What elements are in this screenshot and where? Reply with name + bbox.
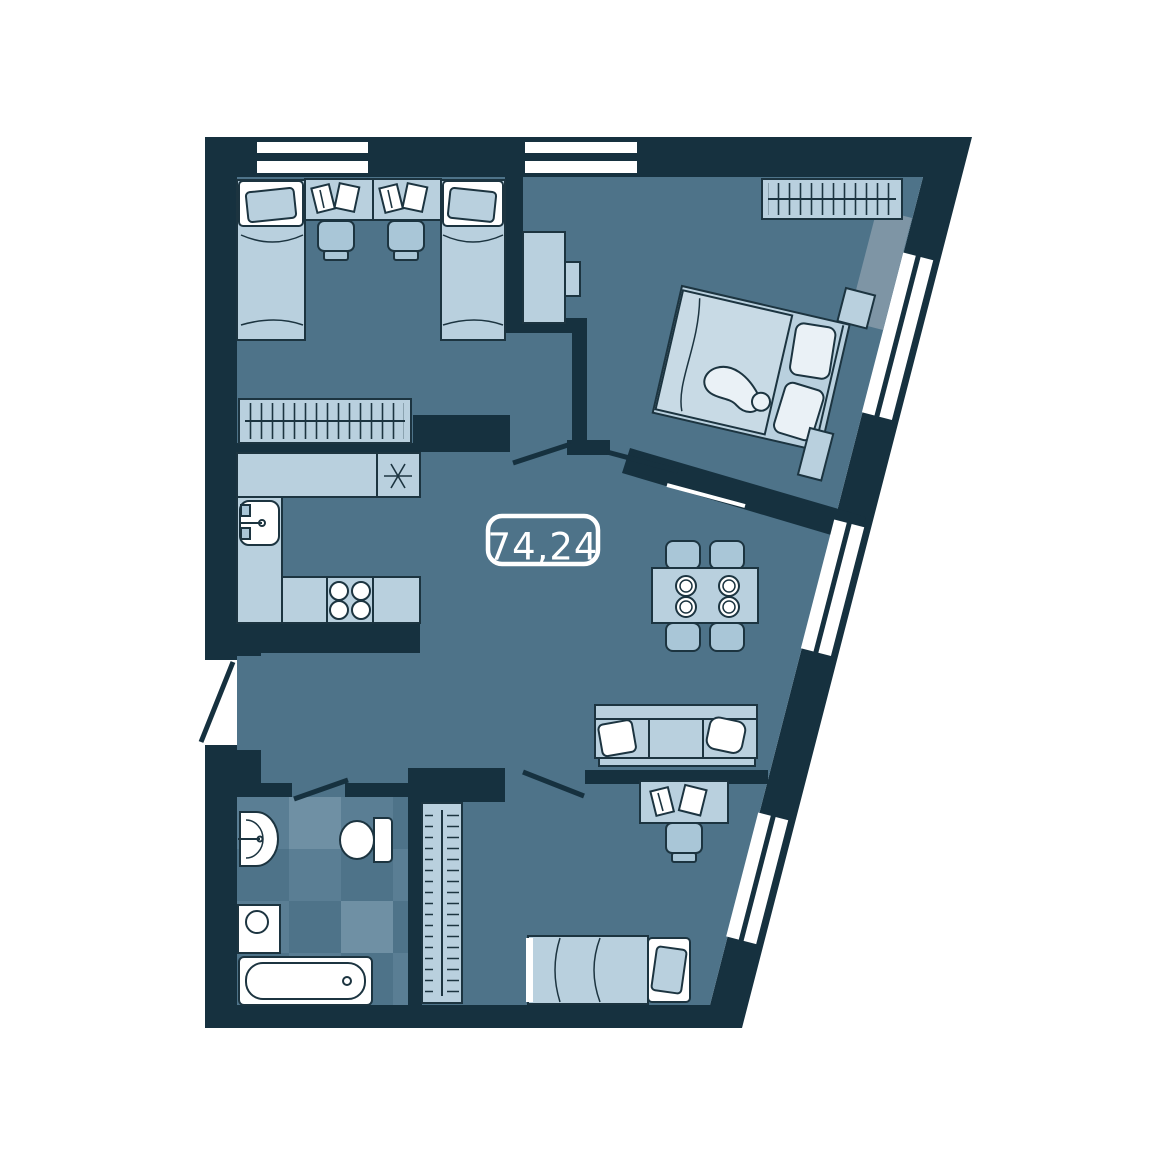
bathtub [239, 957, 372, 1005]
single-bed-bottom [526, 936, 690, 1004]
area-label: 74,24 [488, 526, 599, 569]
plate [719, 576, 739, 596]
hallway [201, 660, 237, 745]
kids-desk-2 [373, 179, 441, 220]
counter-top [237, 453, 420, 497]
bathroom-sink [238, 812, 278, 866]
small-desk [640, 781, 728, 823]
sofa-pillow [705, 716, 747, 755]
desk-chair-2 [388, 221, 424, 260]
plate [676, 576, 696, 596]
small-desk-chair [666, 823, 702, 862]
dining-chair [710, 623, 744, 651]
sofa [595, 705, 757, 766]
floor-plan-page: 74,24 [0, 0, 1166, 1166]
floor-plan-svg: 74,24 [0, 0, 1166, 1166]
plate [719, 597, 739, 617]
sofa-pillow [598, 719, 637, 756]
single-bed-right [441, 180, 505, 340]
washing-machine [238, 905, 280, 953]
wardrobe-kids [239, 399, 411, 443]
dining-chair [666, 623, 700, 651]
toilet [340, 818, 392, 862]
counter-bottom [282, 577, 420, 623]
plate [676, 597, 696, 617]
dining-chair [710, 541, 744, 569]
desk-chair-1 [318, 221, 354, 260]
pillow [789, 322, 837, 380]
kitchen-sink [240, 501, 279, 545]
single-bed-left [237, 180, 305, 340]
wardrobe-rack [422, 803, 462, 1003]
kids-desk-1 [305, 179, 373, 220]
bathroom [237, 780, 408, 1005]
wardrobe-master [762, 179, 902, 219]
dining-chair [666, 541, 700, 569]
